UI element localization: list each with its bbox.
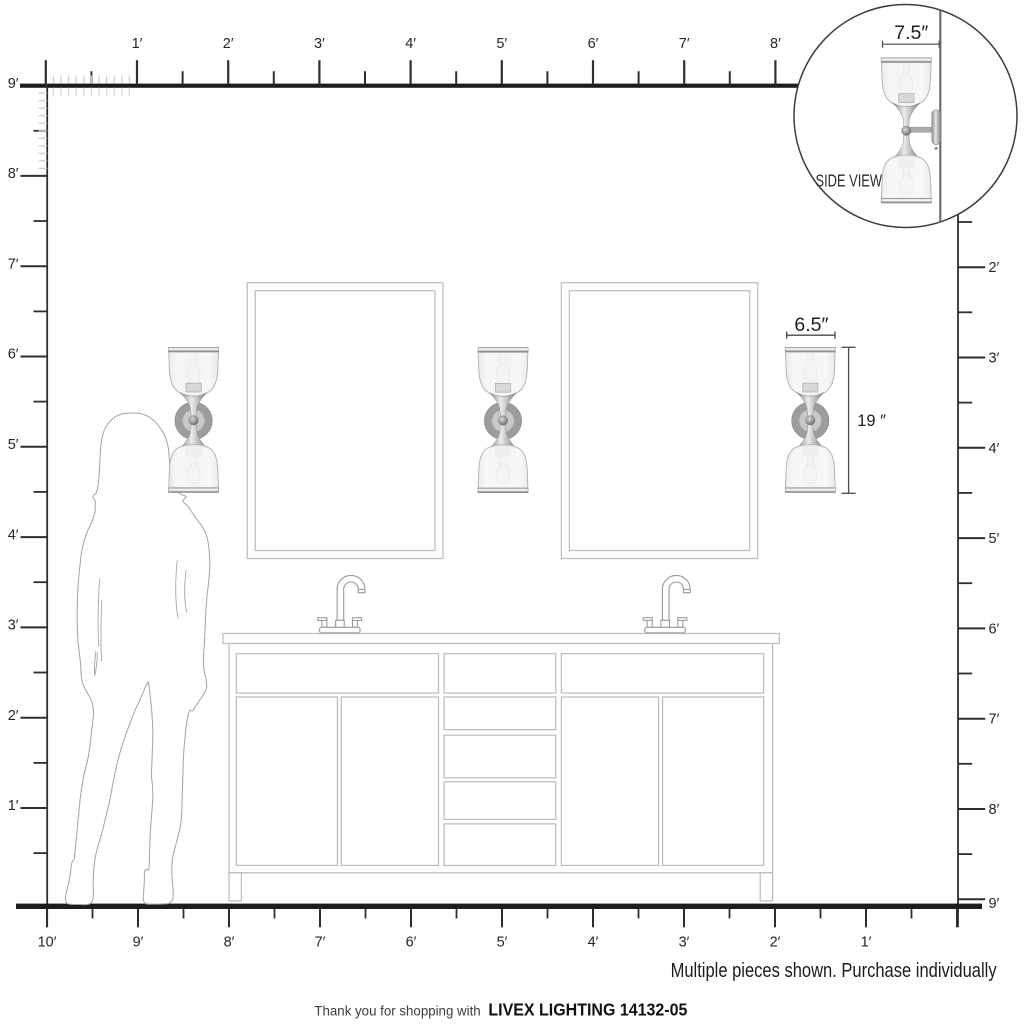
svg-text:8′: 8′ [770,36,781,52]
svg-text:1′: 1′ [861,935,872,951]
svg-text:6.5″: 6.5″ [794,314,828,336]
svg-text:3′: 3′ [679,935,690,951]
svg-text:7′: 7′ [679,36,690,52]
svg-text:6′: 6′ [8,347,19,363]
svg-text:4′: 4′ [588,935,599,951]
svg-text:19 ″: 19 ″ [857,412,886,430]
svg-text:9′: 9′ [8,76,19,92]
svg-text:3′: 3′ [989,351,1000,367]
svg-text:2′: 2′ [8,708,19,724]
svg-text:7′: 7′ [989,712,1000,728]
svg-text:8′: 8′ [224,935,235,951]
svg-text:4′: 4′ [989,441,1000,457]
svg-text:10′: 10′ [38,935,57,951]
svg-text:5′: 5′ [8,437,19,453]
svg-text:5′: 5′ [497,935,508,951]
svg-text:6′: 6′ [989,621,1000,637]
svg-text:4′: 4′ [8,527,19,543]
svg-text:5′: 5′ [989,531,1000,547]
svg-text:9′: 9′ [133,935,144,951]
svg-text:7′: 7′ [8,256,19,272]
svg-text:3′: 3′ [8,618,19,634]
svg-text:7.5″: 7.5″ [894,22,928,44]
svg-text:8′: 8′ [8,166,19,182]
svg-text:9′: 9′ [989,896,1000,912]
svg-text:6′: 6′ [406,935,417,951]
svg-text:6′: 6′ [588,36,599,52]
svg-text:4′: 4′ [405,36,416,52]
svg-text:1′: 1′ [8,798,19,814]
svg-text:2′: 2′ [223,36,234,52]
svg-text:8′: 8′ [989,802,1000,818]
svg-text:7′: 7′ [315,935,326,951]
svg-text:SIDE VIEW: SIDE VIEW [816,171,883,191]
svg-text:1′: 1′ [132,36,143,52]
svg-text:3′: 3′ [314,36,325,52]
svg-text:2′: 2′ [989,260,1000,276]
svg-text:Multiple pieces shown. Purchas: Multiple pieces shown. Purchase individu… [671,959,998,982]
svg-text:2′: 2′ [770,935,781,951]
svg-text:5′: 5′ [496,36,507,52]
